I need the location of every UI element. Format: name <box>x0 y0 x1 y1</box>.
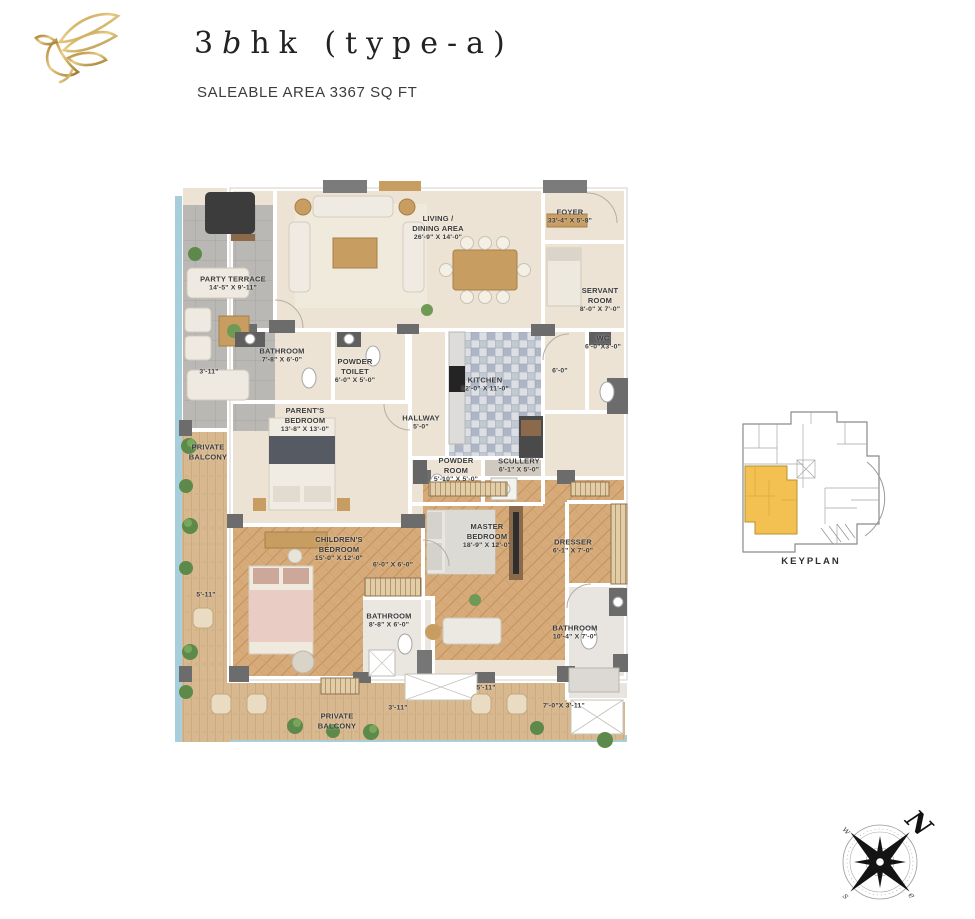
compass-rose-icon: N w s e <box>822 806 942 914</box>
dim-mark-bottom-balcony: 3'-11" <box>388 705 407 714</box>
room-label-private-balcony-left: PRIVATEBALCONY <box>189 442 227 462</box>
room-label-parents-bedroom: PARENT'SBEDROOM13'-8" X 13'-0" <box>281 406 329 434</box>
room-label-bathroom-master: BATHROOM10'-4" X 7'-0" <box>552 624 597 643</box>
room-label-foyer: FOYER33'-4" X 5'-8" <box>548 208 592 227</box>
room-label-childrens-bedroom: CHILDREN'SBEDROOM15'-0" X 12'-0" <box>315 535 363 563</box>
room-label-powder-room: POWDERROOM5'-10" X 5'-0" <box>434 456 478 484</box>
floor-plan-drawing <box>175 180 633 748</box>
room-label-private-balcony-bottom: PRIVATEBALCONY <box>318 711 356 731</box>
title-number: 3 <box>194 26 222 61</box>
room-label-kitchen: KITCHEN12'-0" X 11'-0" <box>461 376 509 395</box>
dim-mark-bottom-right: 5'-11" <box>476 685 495 694</box>
room-label-dresser: DRESSER6'-1" X 7'-0" <box>553 538 593 557</box>
title-italic-letter: b <box>222 26 250 61</box>
room-label-master-bedroom: MASTERBEDROOM18'-9" X 12'-0" <box>463 522 511 550</box>
room-label-hallway: HALLWAY5'-0" <box>402 414 439 433</box>
compass-west-label: w <box>840 825 853 838</box>
room-label-wc: WC6'-0"X3'-0" <box>585 334 621 353</box>
floor-plan: PARTY TERRACE14'-5" X 9'-11" LIVING /DIN… <box>175 180 633 748</box>
brand-logo-bird-icon <box>26 6 126 84</box>
dim-mark-servant-corridor: 6'-0" <box>552 368 568 377</box>
room-label-bathroom-parent: BATHROOM7'-8" X 6'-0" <box>259 347 304 366</box>
room-label-living-dining: LIVING /DINING AREA26'-9" X 14'-0" <box>412 214 464 242</box>
compass-east-label: e <box>906 891 917 902</box>
dim-mark-wardrobe: 6'-0" X 6'-0" <box>373 562 413 571</box>
keyplan-label: KEYPLAN <box>781 556 840 567</box>
compass-south-label: s <box>840 891 851 902</box>
dim-mark-left-lower: 5'-11" <box>196 592 215 601</box>
title-rest: hk (type-a) <box>250 26 513 61</box>
page-title: 3bhk (type-a) <box>194 26 514 61</box>
dim-mark-left-upper: 3'-11" <box>199 369 218 378</box>
dim-mark-master-balcony: 7'-0"X 3'-11" <box>543 703 585 712</box>
room-label-scullery: SCULLERY6'-1" X 5'-0" <box>498 457 540 476</box>
room-label-party-terrace: PARTY TERRACE14'-5" X 9'-11" <box>200 275 266 294</box>
room-label-powder-toilet: POWDERTOILET6'-0" X 5'-0" <box>335 357 375 385</box>
room-label-servant-room: SERVANTROOM8'-0" X 7'-0" <box>580 286 620 314</box>
keyplan <box>733 404 889 572</box>
saleable-area-text: SALEABLE AREA 3367 SQ FT <box>197 84 417 101</box>
room-label-bathroom-children: BATHROOM8'-8" X 6'-0" <box>366 612 411 631</box>
